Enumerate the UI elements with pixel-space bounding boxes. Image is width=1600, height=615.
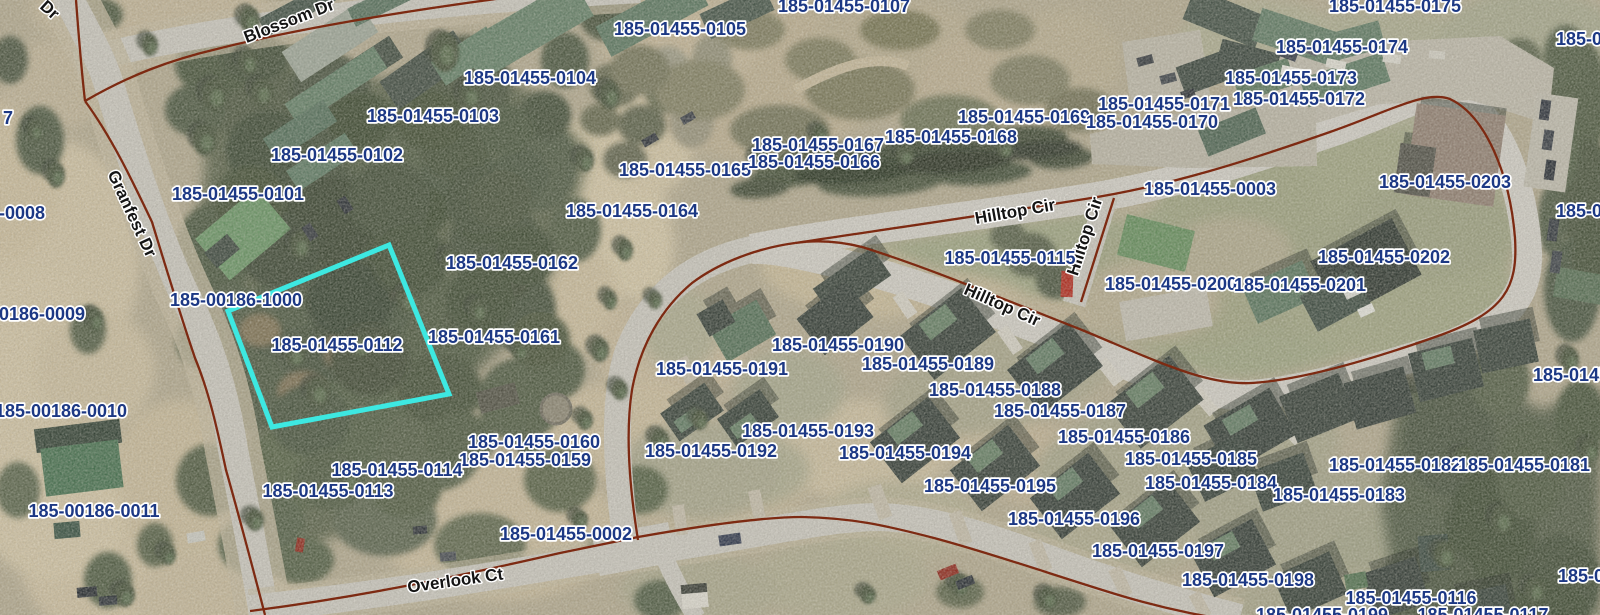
svg-text:185-01455-0102: 185-01455-0102	[271, 145, 403, 165]
svg-text:185-01455-0114: 185-01455-0114	[331, 460, 462, 480]
svg-text:185-01455-0161: 185-01455-0161	[428, 327, 560, 347]
svg-text:185-01455-0195: 185-01455-0195	[924, 476, 1056, 496]
svg-text:185-01455-0191: 185-01455-0191	[656, 359, 788, 379]
svg-text:185-01455-0117: 185-01455-0117	[1417, 605, 1548, 615]
svg-text:185-01455-0112: 185-01455-0112	[271, 335, 402, 355]
svg-text:185-01455-0201: 185-01455-0201	[1234, 275, 1366, 295]
svg-text:0186-0009: 0186-0009	[0, 304, 85, 324]
svg-text:185-01455-0180: 185-01455-0180	[1558, 566, 1600, 586]
svg-text:185-01455-0149: 185-01455-0149	[1533, 365, 1600, 385]
svg-text:185-01455-0002: 185-01455-0002	[500, 524, 632, 544]
svg-text:7: 7	[3, 108, 13, 128]
svg-text:185-01455-0168: 185-01455-0168	[885, 127, 1017, 147]
svg-text:185-01455-0196: 185-01455-0196	[1008, 509, 1140, 529]
svg-text:185-01455-0181: 185-01455-0181	[1458, 455, 1590, 475]
svg-text:185-01455-0184: 185-01455-0184	[1145, 473, 1277, 493]
svg-text:185-01455-0160: 185-01455-0160	[468, 432, 600, 452]
svg-text:185-01455-0182: 185-01455-0182	[1329, 455, 1461, 475]
svg-text:185-01455-0183: 185-01455-0183	[1273, 485, 1405, 505]
svg-text:-0008: -0008	[0, 203, 45, 223]
svg-text:185-01455-0185: 185-01455-0185	[1125, 449, 1257, 469]
svg-text:185-01455-0104: 185-01455-0104	[464, 68, 596, 88]
svg-text:185-01455-0190: 185-01455-0190	[772, 335, 904, 355]
svg-text:185-00186-0011: 185-00186-0011	[28, 501, 159, 521]
svg-text:185-01455-0165: 185-01455-0165	[619, 160, 751, 180]
svg-text:185-01455-0175: 185-01455-0175	[1329, 0, 1461, 16]
svg-text:185-01455-0162: 185-01455-0162	[446, 253, 578, 273]
svg-text:185-01455-0202: 185-01455-0202	[1318, 247, 1450, 267]
svg-text:185-01455-0176: 185-01455-0176	[1556, 29, 1600, 49]
svg-text:185-01455-0203: 185-01455-0203	[1379, 172, 1511, 192]
svg-text:185-01455-0189: 185-01455-0189	[862, 354, 994, 374]
svg-text:185-00186-0010: 185-00186-0010	[0, 401, 127, 421]
svg-text:185-01455-0204: 185-01455-0204	[1556, 201, 1600, 221]
svg-text:185-01455-0173: 185-01455-0173	[1225, 68, 1357, 88]
svg-text:185-01455-0164: 185-01455-0164	[566, 201, 698, 221]
svg-text:185-01455-0169: 185-01455-0169	[958, 107, 1090, 127]
svg-text:185-01455-0170: 185-01455-0170	[1086, 112, 1218, 132]
svg-text:185-01455-0198: 185-01455-0198	[1182, 570, 1314, 590]
svg-text:185-01455-0172: 185-01455-0172	[1233, 89, 1365, 109]
svg-text:185-01455-0105: 185-01455-0105	[614, 19, 746, 39]
svg-text:185-01455-0171: 185-01455-0171	[1098, 94, 1230, 114]
svg-text:185-01455-0101: 185-01455-0101	[172, 184, 304, 204]
svg-text:185-01455-0192: 185-01455-0192	[645, 441, 777, 461]
svg-text:185-01455-0003: 185-01455-0003	[1144, 179, 1276, 199]
svg-text:185-01455-0199: 185-01455-0199	[1256, 605, 1388, 615]
svg-text:185-01455-0159: 185-01455-0159	[459, 450, 591, 470]
svg-text:185-00186-1000: 185-00186-1000	[170, 290, 302, 310]
svg-text:185-01455-0113: 185-01455-0113	[262, 481, 393, 501]
svg-text:185-01455-0194: 185-01455-0194	[839, 443, 971, 463]
svg-text:185-01455-0103: 185-01455-0103	[367, 106, 499, 126]
svg-text:185-01455-0174: 185-01455-0174	[1276, 37, 1408, 57]
svg-text:185-01455-0188: 185-01455-0188	[929, 380, 1061, 400]
svg-text:185-01455-0200: 185-01455-0200	[1105, 274, 1237, 294]
svg-text:185-01455-0107: 185-01455-0107	[778, 0, 910, 16]
svg-text:185-01455-0186: 185-01455-0186	[1058, 427, 1190, 447]
svg-text:185-01455-0166: 185-01455-0166	[748, 152, 880, 172]
svg-text:185-01455-0193: 185-01455-0193	[742, 421, 874, 441]
svg-text:185-01455-0115: 185-01455-0115	[944, 248, 1075, 268]
svg-text:185-01455-0197: 185-01455-0197	[1092, 541, 1224, 561]
svg-text:185-01455-0187: 185-01455-0187	[994, 401, 1126, 421]
